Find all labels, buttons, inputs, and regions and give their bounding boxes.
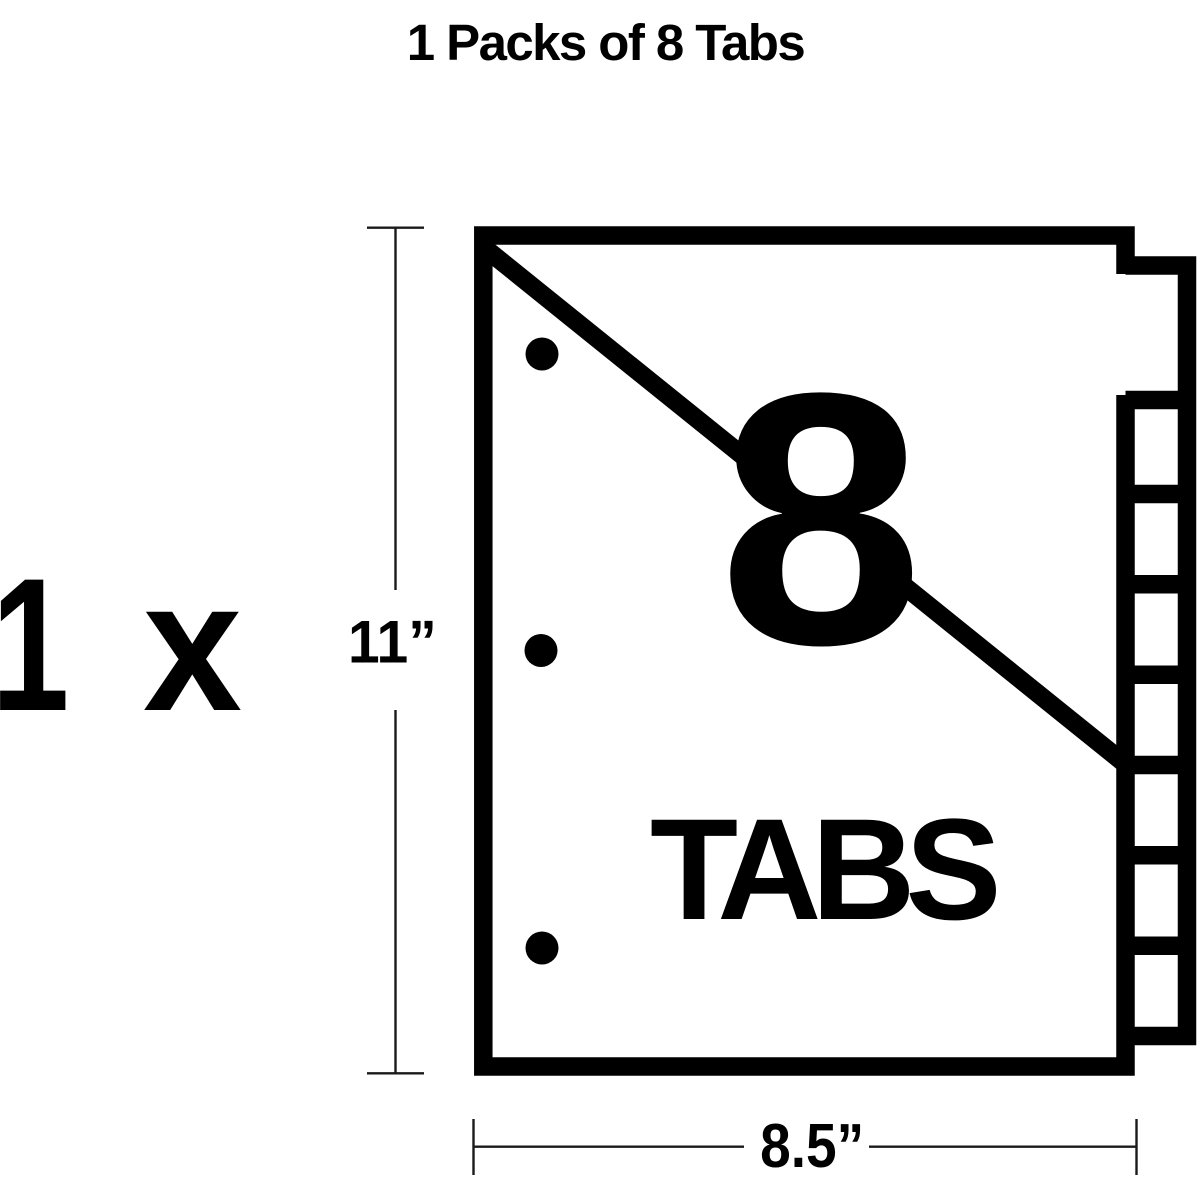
svg-text:1 Packs of 8 Tabs: 1 Packs of 8 Tabs [407,14,806,71]
svg-text:1: 1 [0,539,69,750]
svg-text:TABS: TABS [650,788,1002,950]
svg-text:8.5”: 8.5” [760,1112,864,1181]
svg-text:x: x [143,541,242,749]
svg-text:11”: 11” [348,609,437,676]
svg-text:8: 8 [719,319,924,720]
